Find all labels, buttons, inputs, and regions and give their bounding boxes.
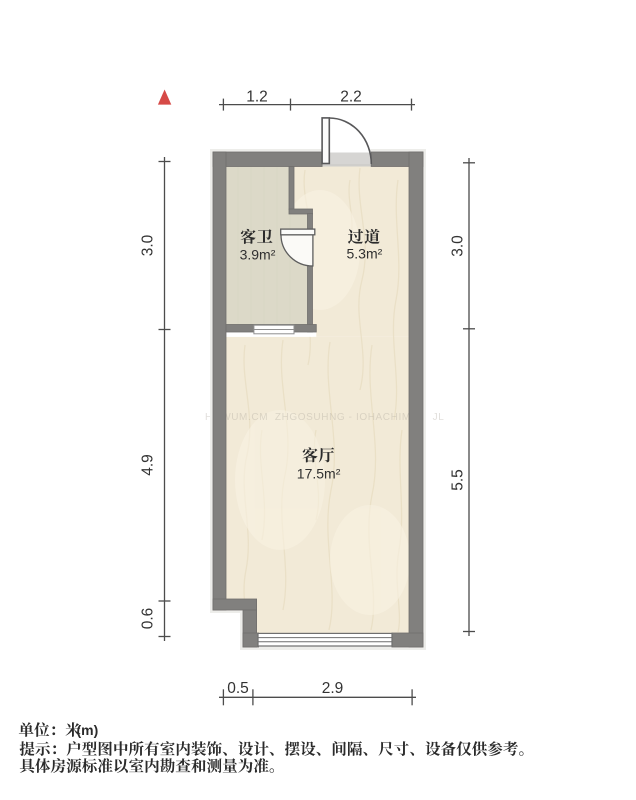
svg-text:2.2: 2.2 (340, 89, 362, 106)
svg-text:5.3m²: 5.3m² (347, 246, 383, 262)
svg-text:5.5: 5.5 (450, 469, 467, 491)
svg-text:0.6: 0.6 (140, 608, 157, 630)
svg-text:0.5: 0.5 (227, 680, 249, 697)
svg-text:2.9: 2.9 (322, 680, 344, 697)
svg-text:4.9: 4.9 (140, 454, 157, 476)
svg-text:17.5m²: 17.5m² (297, 466, 341, 482)
svg-text:1.2: 1.2 (246, 89, 268, 106)
svg-text:3.9m²: 3.9m² (240, 247, 276, 263)
svg-text:3.0: 3.0 (140, 234, 157, 256)
svg-text:3.0: 3.0 (450, 235, 467, 257)
svg-text:(m): (m) (77, 722, 99, 738)
svg-text:HOWUM.CM ZHGOSUHNG - IOHACHIM: HOWUM.CM ZHGOSUHNG - IOHACHIMNE JL (205, 412, 444, 423)
